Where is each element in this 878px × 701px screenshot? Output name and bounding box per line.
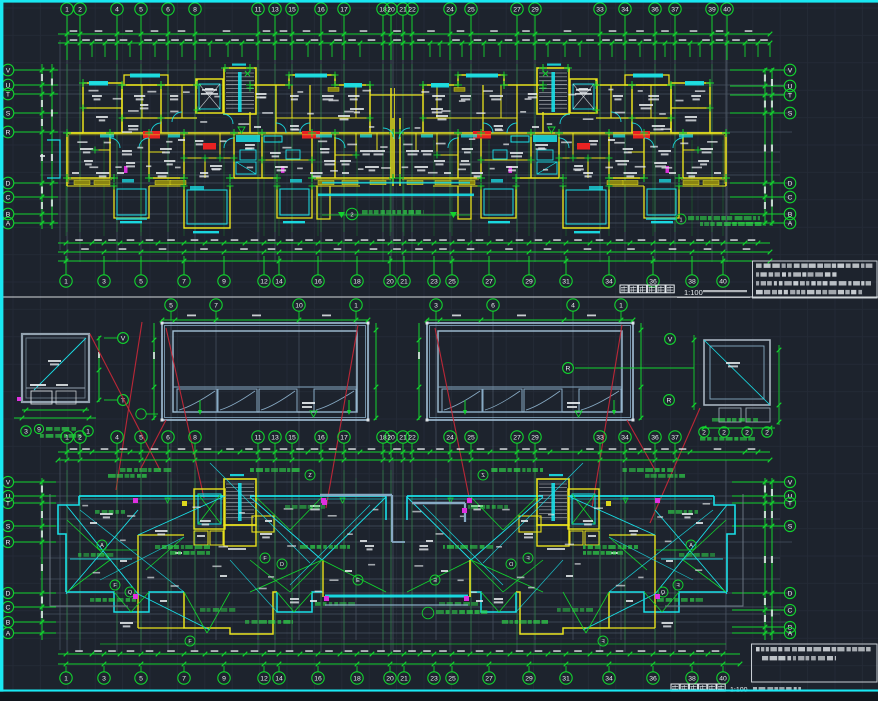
svg-text:V: V — [6, 67, 11, 74]
svg-text:25: 25 — [448, 278, 456, 285]
svg-text:36: 36 — [651, 434, 659, 441]
svg-text:C: C — [6, 604, 11, 611]
svg-text:23: 23 — [430, 675, 438, 682]
svg-text:34: 34 — [621, 434, 629, 441]
svg-text:4: 4 — [571, 302, 575, 309]
svg-text:R: R — [6, 539, 11, 546]
svg-text:V: V — [788, 67, 793, 74]
svg-text:15: 15 — [288, 434, 296, 441]
svg-text:27: 27 — [513, 6, 521, 13]
svg-text:6: 6 — [166, 6, 170, 13]
svg-text:25: 25 — [467, 6, 475, 13]
svg-text:1: 1 — [64, 675, 68, 682]
svg-text:A: A — [100, 543, 104, 549]
svg-text:9: 9 — [37, 426, 41, 433]
svg-text:C: C — [788, 194, 793, 201]
svg-text:37: 37 — [671, 6, 679, 13]
svg-text:9: 9 — [222, 278, 226, 285]
svg-text:29: 29 — [531, 6, 539, 13]
svg-text:2: 2 — [745, 429, 749, 436]
svg-text:A: A — [6, 630, 11, 637]
svg-text:36: 36 — [651, 6, 659, 13]
svg-text:2: 2 — [765, 429, 769, 436]
svg-text:V: V — [121, 335, 126, 342]
svg-text:38: 38 — [688, 278, 696, 285]
svg-text:R: R — [667, 397, 672, 404]
svg-text:20: 20 — [387, 6, 395, 13]
svg-text:4: 4 — [115, 6, 119, 13]
svg-text:27: 27 — [513, 434, 521, 441]
svg-text:8: 8 — [193, 6, 197, 13]
svg-text:3: 3 — [434, 302, 438, 309]
svg-text:D: D — [788, 180, 793, 187]
svg-text:13: 13 — [271, 6, 279, 13]
svg-text:A: A — [6, 220, 11, 227]
svg-text:U: U — [788, 493, 793, 500]
svg-text:7: 7 — [214, 302, 218, 309]
svg-text:3: 3 — [102, 675, 106, 682]
svg-text:37: 37 — [671, 434, 679, 441]
svg-text:23: 23 — [430, 278, 438, 285]
svg-text:2: 2 — [722, 429, 726, 436]
svg-text:27: 27 — [485, 675, 493, 682]
svg-text:25: 25 — [467, 434, 475, 441]
svg-text:9: 9 — [222, 675, 226, 682]
svg-text:S: S — [788, 110, 793, 117]
svg-text:C: C — [6, 194, 11, 201]
svg-text:4: 4 — [115, 434, 119, 441]
svg-text:E: E — [356, 578, 360, 584]
svg-text:34: 34 — [621, 6, 629, 13]
svg-text:T: T — [6, 500, 10, 507]
svg-text:36: 36 — [649, 675, 657, 682]
svg-text:16: 16 — [317, 6, 325, 13]
svg-text:5: 5 — [139, 6, 143, 13]
svg-text:22: 22 — [408, 6, 416, 13]
svg-text:24: 24 — [446, 434, 454, 441]
svg-text:36: 36 — [649, 278, 657, 285]
svg-text:A: A — [689, 543, 693, 549]
svg-text:21: 21 — [400, 675, 408, 682]
svg-text:2: 2 — [78, 6, 82, 13]
svg-text:U: U — [6, 493, 11, 500]
svg-text:18: 18 — [353, 278, 361, 285]
svg-text:2: 2 — [702, 429, 706, 436]
svg-text:V: V — [6, 479, 11, 486]
svg-text:T: T — [788, 92, 792, 99]
svg-text:39: 39 — [708, 6, 716, 13]
svg-text:31: 31 — [562, 278, 570, 285]
svg-text:S: S — [788, 523, 793, 530]
svg-text:R: R — [566, 365, 571, 372]
svg-text:C: C — [788, 607, 793, 614]
svg-text:V: V — [788, 479, 793, 486]
svg-text:1:100: 1:100 — [684, 288, 703, 297]
svg-text:25: 25 — [448, 675, 456, 682]
svg-text:14: 14 — [275, 675, 283, 682]
svg-text:17: 17 — [340, 6, 348, 13]
svg-text:6: 6 — [166, 434, 170, 441]
svg-text:2: 2 — [78, 434, 82, 441]
svg-text:1: 1 — [619, 302, 623, 309]
svg-text:5: 5 — [169, 302, 173, 309]
svg-text:1: 1 — [679, 218, 682, 224]
svg-text:1: 1 — [86, 428, 90, 435]
svg-text:11: 11 — [254, 434, 261, 441]
svg-text:15: 15 — [288, 6, 296, 13]
svg-text:8: 8 — [193, 434, 197, 441]
svg-text:T: T — [6, 91, 10, 98]
svg-text:Q: Q — [128, 590, 133, 596]
svg-text:27: 27 — [485, 278, 493, 285]
svg-text:33: 33 — [596, 6, 604, 13]
svg-text:D: D — [509, 562, 513, 568]
svg-text:1: 1 — [65, 6, 69, 13]
svg-text:40: 40 — [719, 278, 727, 285]
svg-text:V: V — [668, 336, 673, 343]
svg-text:3: 3 — [102, 278, 106, 285]
svg-text:17: 17 — [340, 434, 348, 441]
svg-text:5: 5 — [139, 434, 143, 441]
svg-text:1: 1 — [354, 302, 358, 309]
svg-text:7: 7 — [182, 675, 186, 682]
svg-text:S: S — [6, 110, 11, 117]
svg-text:18: 18 — [353, 675, 361, 682]
svg-text:Q: Q — [660, 590, 665, 596]
svg-text:40: 40 — [723, 6, 731, 13]
svg-text:11: 11 — [254, 6, 261, 13]
svg-text:34: 34 — [605, 278, 613, 285]
svg-text:40: 40 — [719, 675, 727, 682]
svg-text:20: 20 — [386, 278, 394, 285]
svg-text:1: 1 — [65, 434, 69, 441]
svg-text:24: 24 — [446, 6, 454, 13]
svg-text:29: 29 — [525, 675, 533, 682]
svg-text:5: 5 — [139, 278, 143, 285]
svg-text:E: E — [433, 578, 437, 584]
svg-text:31: 31 — [562, 675, 570, 682]
svg-text:D: D — [280, 562, 284, 568]
svg-text:14: 14 — [275, 278, 283, 285]
svg-text:B: B — [6, 619, 11, 626]
svg-text:6: 6 — [491, 302, 495, 309]
svg-text:T: T — [788, 500, 792, 507]
svg-text:A: A — [788, 220, 793, 227]
svg-text:S: S — [6, 523, 11, 530]
svg-text:34: 34 — [605, 675, 613, 682]
svg-text:A: A — [788, 630, 793, 637]
svg-text:22: 22 — [408, 434, 416, 441]
svg-text:38: 38 — [688, 675, 696, 682]
svg-text:D: D — [788, 590, 793, 597]
svg-text:D: D — [6, 590, 11, 597]
svg-text:20: 20 — [386, 675, 394, 682]
svg-text:12: 12 — [260, 278, 268, 285]
svg-text:R: R — [6, 129, 11, 136]
svg-text:21: 21 — [400, 278, 408, 285]
svg-text:29: 29 — [525, 278, 533, 285]
svg-text:3: 3 — [24, 428, 28, 435]
svg-text:16: 16 — [314, 675, 322, 682]
svg-text:2: 2 — [350, 213, 353, 219]
svg-text:16: 16 — [317, 434, 325, 441]
svg-text:13: 13 — [271, 434, 279, 441]
svg-text:1: 1 — [64, 278, 68, 285]
svg-text:12: 12 — [260, 675, 268, 682]
svg-text:29: 29 — [531, 434, 539, 441]
svg-text:D: D — [6, 180, 11, 187]
svg-text:20: 20 — [387, 434, 395, 441]
svg-text:7: 7 — [182, 278, 186, 285]
svg-text:5: 5 — [139, 675, 143, 682]
svg-text:33: 33 — [596, 434, 604, 441]
svg-text:16: 16 — [314, 278, 322, 285]
svg-text:10: 10 — [295, 302, 303, 309]
